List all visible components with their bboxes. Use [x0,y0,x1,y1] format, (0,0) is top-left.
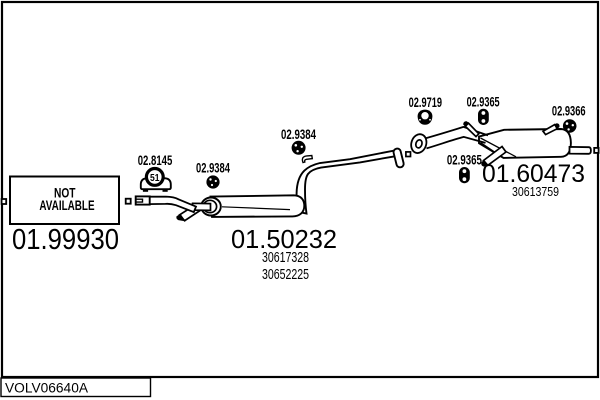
svg-text:02.9366: 02.9366 [552,103,586,119]
svg-text:02.9719: 02.9719 [409,94,443,110]
svg-text:30652225: 30652225 [262,267,309,283]
svg-text:01.60473: 01.60473 [482,160,585,188]
svg-text:51: 51 [150,173,160,184]
svg-text:02.9365: 02.9365 [447,151,482,167]
svg-text:AVAILABLE: AVAILABLE [39,197,94,213]
svg-text:02.8145: 02.8145 [138,152,173,168]
svg-text:02.9365: 02.9365 [467,93,500,109]
svg-text:30613759: 30613759 [512,185,559,199]
svg-text:30617328: 30617328 [262,250,309,266]
svg-text:01.99930: 01.99930 [12,224,119,256]
svg-text:VOLV06640A: VOLV06640A [5,381,88,396]
svg-text:02.9384: 02.9384 [196,160,230,176]
svg-text:02.9384: 02.9384 [281,126,316,142]
